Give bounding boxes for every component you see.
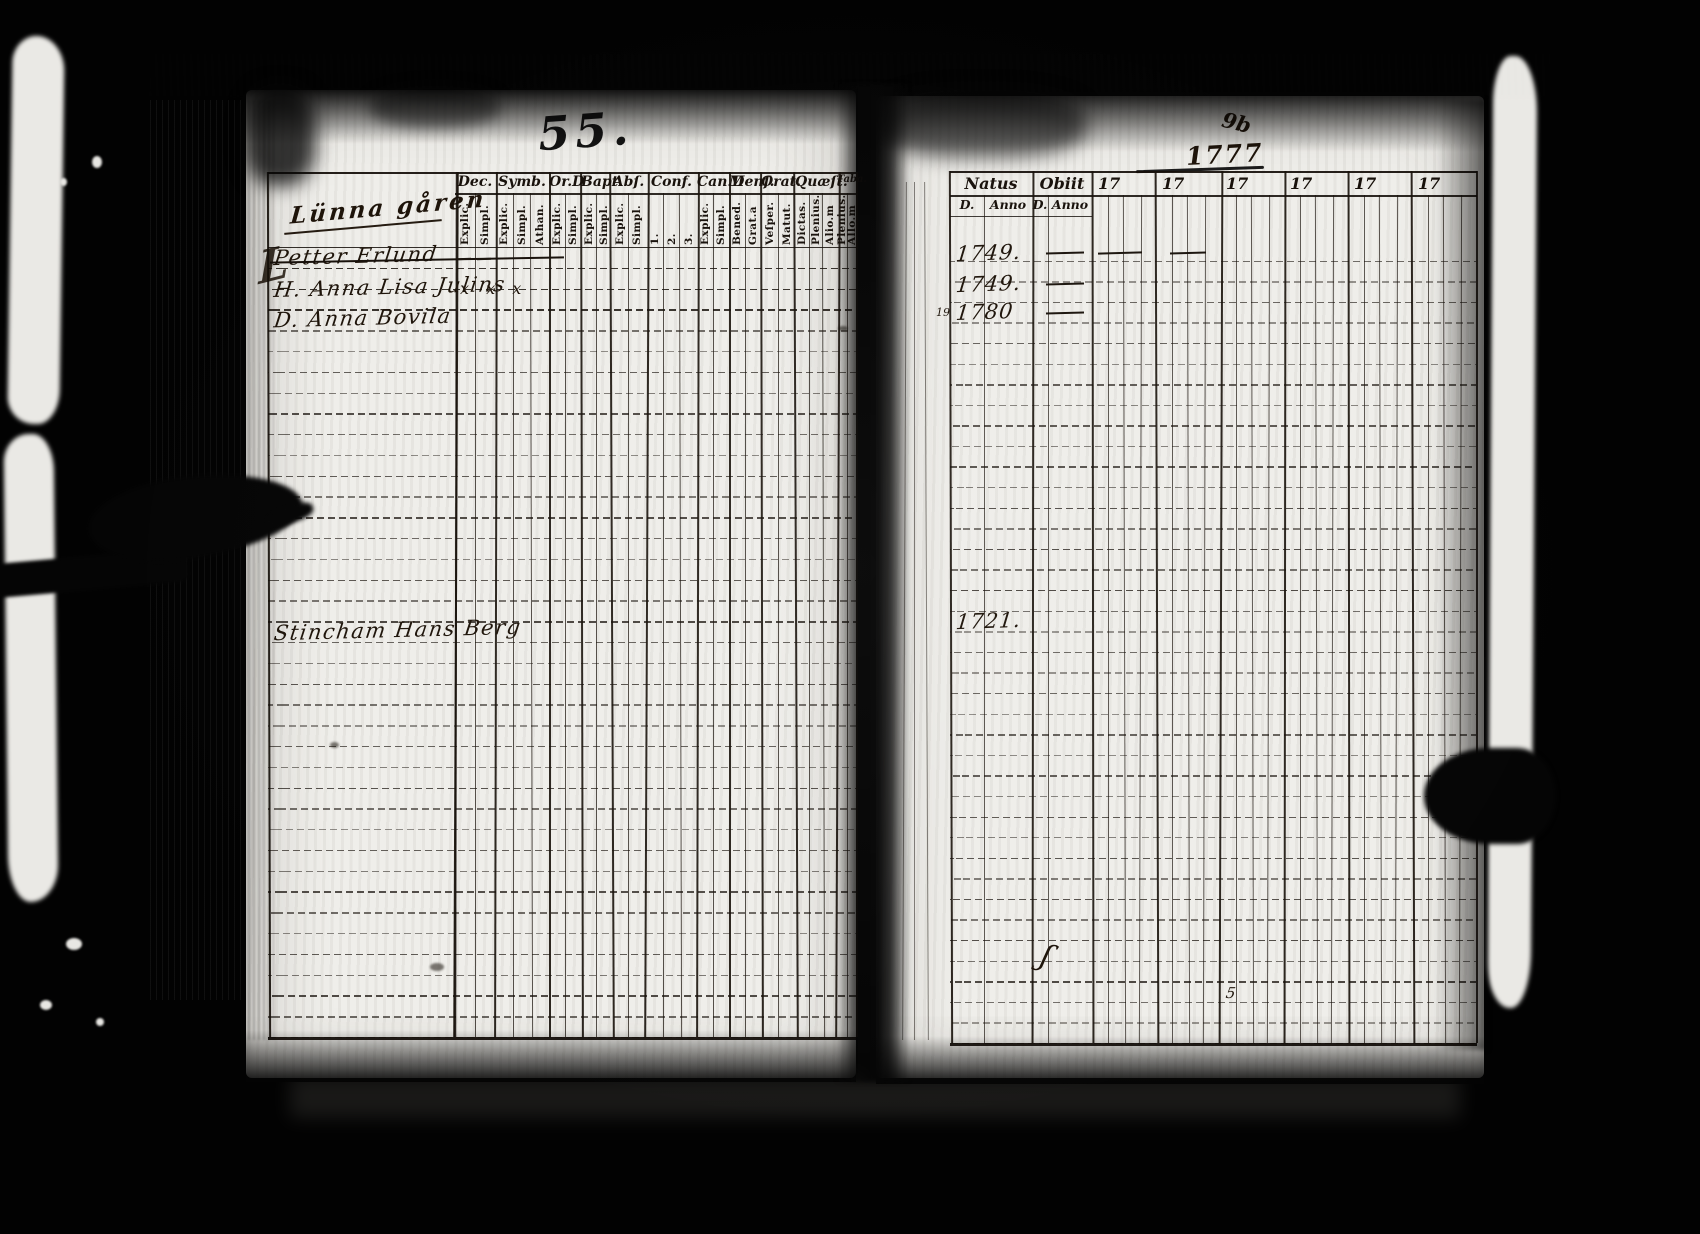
row-line xyxy=(950,755,1476,756)
row-line xyxy=(268,1037,856,1038)
subcolumn-label: D. xyxy=(950,197,984,212)
subcolumn-rule xyxy=(745,193,746,1037)
row-line xyxy=(268,351,856,352)
column-header-label: Menſ. xyxy=(729,174,761,190)
row-line xyxy=(268,767,856,768)
page-number-left: 55. xyxy=(536,101,635,161)
subcolumn-vertical-label: Simpl. xyxy=(567,193,579,245)
row-line xyxy=(950,981,1476,982)
subcolumn-rule xyxy=(663,193,664,1037)
subcolumn-rule xyxy=(778,193,779,1037)
row-line xyxy=(950,611,1476,612)
row-line xyxy=(950,858,1476,859)
row-line xyxy=(950,693,1476,694)
ink-blotch xyxy=(430,963,444,971)
handwritten-cross-marks: x x x xyxy=(460,279,527,298)
row-line xyxy=(268,746,856,747)
column-header-label: Natus xyxy=(950,174,1032,193)
column-header-label: 17 xyxy=(1354,174,1384,193)
page-edge-line xyxy=(914,182,915,1040)
row-line xyxy=(950,1002,1476,1003)
row-line xyxy=(268,330,856,331)
dust-speck xyxy=(66,938,82,950)
row-line xyxy=(268,476,856,477)
column-header-label: Quæſt. xyxy=(795,174,837,190)
dust-speck xyxy=(40,1000,52,1010)
subcolumn-rule xyxy=(847,193,848,1037)
column-header-label: Can.D xyxy=(697,174,729,190)
subcolumn-rule xyxy=(1300,195,1301,1043)
film-sliver-left-lower xyxy=(4,434,59,902)
subcolumn-vertical-label: Simpl. xyxy=(479,193,491,245)
table-right-rule xyxy=(1476,171,1478,1043)
subcolumn-vertical-label: Explic. xyxy=(498,193,510,245)
subcolumn-rule xyxy=(1428,195,1429,1043)
row-line xyxy=(268,538,856,539)
subcolumn-rule xyxy=(1236,195,1237,1043)
subcolumn-vertical-label: Bened. xyxy=(731,193,743,245)
column-header-label: Abſ. xyxy=(611,174,646,190)
row-line xyxy=(268,372,856,373)
subcolumn-vertical-label: Simpl. xyxy=(516,193,528,245)
handwritten-entry: 1749. xyxy=(955,240,1023,266)
subcolumn-rule xyxy=(1108,195,1109,1043)
subcolumn-rule xyxy=(1172,195,1173,1043)
row-line xyxy=(950,837,1476,838)
row-line xyxy=(950,714,1476,715)
row-line xyxy=(268,871,856,872)
column-header-label: Conf. xyxy=(646,174,697,190)
subcolumn-rule xyxy=(628,193,629,1037)
subcolumn-label: Anno xyxy=(984,197,1032,212)
ink-blotch xyxy=(838,326,848,331)
row-line xyxy=(950,919,1476,920)
subcolumn-vertical-label: Plenius. xyxy=(810,193,822,245)
ink-blotch xyxy=(330,742,339,748)
subcolumn-vertical-label: Dictas. xyxy=(796,193,808,245)
subcolumn-vertical-label: Explic. xyxy=(699,193,711,245)
subcolumn-vertical-label: Simpl. xyxy=(631,193,643,245)
handwritten-entry: 1749. xyxy=(955,270,1023,296)
dust-speck xyxy=(60,178,67,186)
row-line xyxy=(950,817,1476,818)
row-line xyxy=(268,393,856,394)
subcolumn-vertical-label: Explic. xyxy=(551,193,563,245)
row-line xyxy=(268,663,856,664)
row-line xyxy=(268,912,856,913)
handwritten-entry: Petter Erlund xyxy=(272,242,439,270)
row-line xyxy=(268,559,856,560)
row-line xyxy=(950,878,1476,879)
column-header-label: 17 xyxy=(1290,174,1320,193)
row-line xyxy=(268,434,856,435)
subcolumn-vertical-label: Matut. xyxy=(781,193,793,245)
subcolumn-label: Anno xyxy=(1048,197,1092,212)
film-sliver-left-upper xyxy=(7,36,64,425)
table-right-rule xyxy=(856,172,858,1037)
subcolumn-rule xyxy=(1364,195,1365,1043)
column-header-label: Or.D xyxy=(549,174,581,190)
subcolumn-rule xyxy=(809,193,810,1037)
below-pages-mottle xyxy=(290,1076,1460,1118)
row-line xyxy=(268,725,856,726)
row-line xyxy=(268,808,856,809)
row-line xyxy=(268,413,856,414)
subcolumn-vertical-label: Explic. xyxy=(614,193,626,245)
film-sliver-right xyxy=(1487,56,1538,1008)
row-line xyxy=(950,1022,1476,1023)
row-line xyxy=(950,652,1476,653)
subcolumn-label: D. xyxy=(1032,197,1048,212)
row-line xyxy=(268,933,856,934)
row-line xyxy=(268,954,856,955)
row-line xyxy=(268,891,856,892)
column-header-label: Dec. xyxy=(455,174,495,190)
dust-speck xyxy=(92,156,102,168)
subcolumn-vertical-label: Grat.a xyxy=(747,193,759,245)
column-group-rule xyxy=(729,172,731,1037)
row-line xyxy=(268,995,856,996)
row-line xyxy=(950,734,1476,735)
column-header-label: 17 xyxy=(1226,174,1256,193)
subcolumn-vertical-label: Simpl. xyxy=(598,193,610,245)
photo-scan: 55. 9b 1777 Lünna gåren L Dec.Explic.Sim… xyxy=(0,0,1700,1234)
subcolumn-vertical-label: 2. xyxy=(666,193,678,245)
row-line xyxy=(268,850,856,851)
subcolumn-vertical-label: Explic. xyxy=(459,193,471,245)
row-line xyxy=(950,631,1476,632)
row-line xyxy=(268,600,856,601)
row-line xyxy=(950,672,1476,673)
subcolumn-rule xyxy=(596,193,597,1037)
subcolumn-vertical-label: 3. xyxy=(683,193,695,245)
column-group-rule xyxy=(549,172,551,1037)
subcolumn-vertical-label: Simpl. xyxy=(715,193,727,245)
subcolumn-vertical-label: Veſper. xyxy=(764,193,776,245)
row-line xyxy=(950,940,1476,941)
subcolumn-vertical-label: Alio.m xyxy=(824,193,836,245)
subcolumn-vertical-label: Athan. xyxy=(534,193,546,245)
row-line xyxy=(268,496,856,497)
subcolumn-rule xyxy=(565,193,566,1037)
row-line xyxy=(268,975,856,976)
column-header-label: Orat. xyxy=(761,174,795,190)
row-line xyxy=(268,788,856,789)
row-line xyxy=(268,704,856,705)
column-header-label: 17 xyxy=(1162,174,1192,193)
handwritten-margin-note: 19 xyxy=(936,306,950,319)
subheader-bottom-rule xyxy=(950,216,1092,217)
row-line xyxy=(268,1016,856,1017)
column-header-label: Obiit xyxy=(1032,174,1092,193)
row-line xyxy=(268,455,856,456)
row-line xyxy=(268,517,856,518)
row-line xyxy=(950,961,1476,962)
handwritten-entry: D. Anna Bovila xyxy=(272,304,453,333)
column-header-label: 17 xyxy=(1418,174,1448,193)
dust-speck xyxy=(96,1018,104,1026)
row-line xyxy=(950,590,1476,591)
subcolumn-vertical-label: 1. xyxy=(649,193,661,245)
handwritten-entry: 1721. xyxy=(955,608,1023,634)
row-line xyxy=(268,684,856,685)
row-line xyxy=(268,829,856,830)
handwritten-entry: 1780 xyxy=(955,299,1015,325)
column-header-label: Taba. xyxy=(837,174,856,185)
column-header-label: Bapt. xyxy=(581,174,611,190)
subcolumn-rule xyxy=(1048,195,1049,1043)
column-header-label: 17 xyxy=(1098,174,1128,193)
row-line xyxy=(950,796,1476,797)
subcolumn-vertical-label: Explic. xyxy=(583,193,595,245)
column-header-label: Symb. xyxy=(495,174,549,190)
row-line xyxy=(950,775,1476,776)
row-line xyxy=(268,580,856,581)
row-line xyxy=(950,899,1476,900)
subcolumn-rule xyxy=(713,193,714,1037)
row-line xyxy=(950,1043,1476,1044)
right-clamp-blob xyxy=(1424,748,1556,844)
